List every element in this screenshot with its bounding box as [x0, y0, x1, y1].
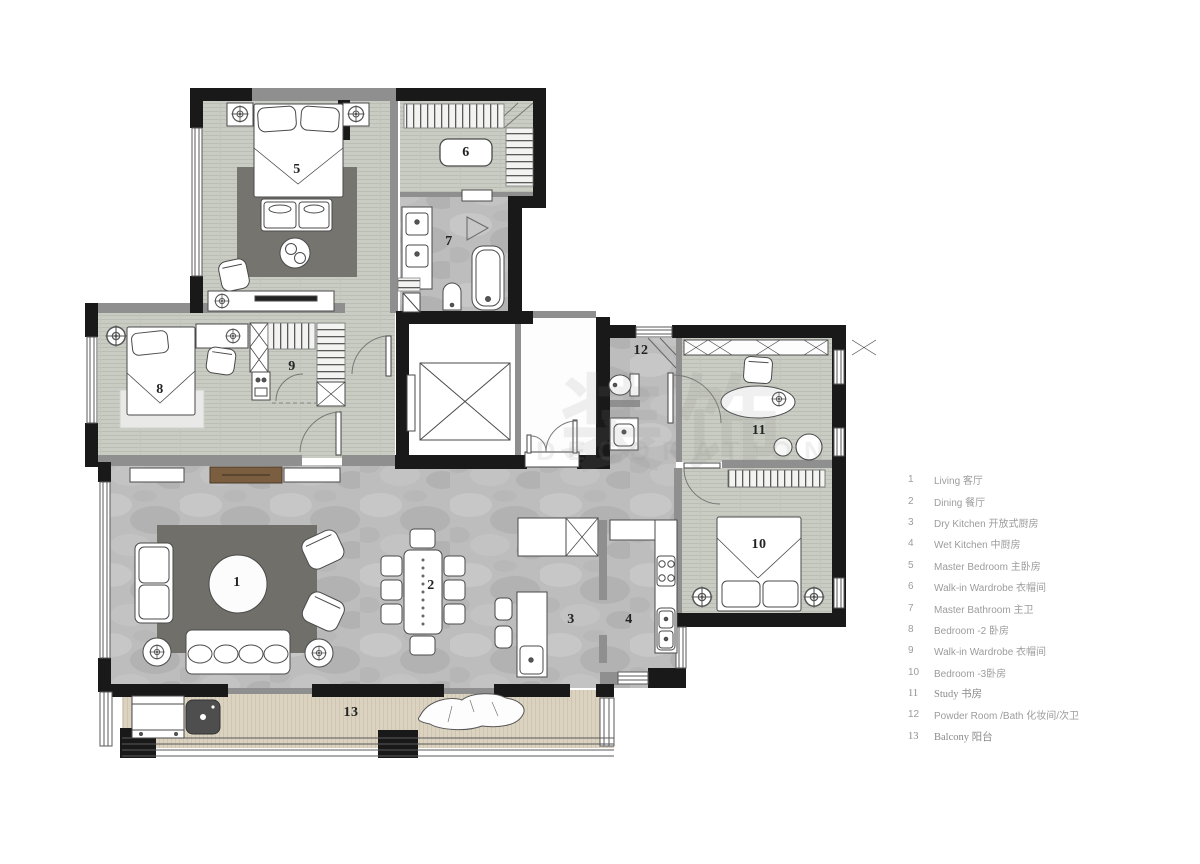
legend-item-dry-kitchen: 3 Dry Kitchen 开放式厨房: [908, 512, 1148, 533]
legend-label: Living 客厅: [934, 472, 983, 487]
legend-item-balcony: 13 Balcony 阳台: [908, 726, 1148, 747]
legend-number: 3: [908, 517, 934, 528]
legend-item-wet-kitchen: 4 Wet Kitchen 中厨房: [908, 533, 1148, 554]
floorplan-page: 装饰 DECORATION 1 2 3 4 5 6 7 8 9 10 11 12…: [0, 0, 1200, 864]
room-label-living: 1: [233, 575, 241, 591]
room-label-master-bedroom: 5: [293, 162, 301, 178]
legend-item-wardrobe-6: 6 Walk-in Wardrobe 衣帽间: [908, 576, 1148, 597]
room-label-dining: 2: [427, 578, 435, 594]
legend-number: 13: [908, 731, 934, 742]
legend-label: Master Bedroom 主卧房: [934, 558, 1041, 573]
legend-number: 7: [908, 603, 934, 614]
room-label-study: 11: [752, 423, 766, 439]
room-label-wardrobe-6: 6: [462, 145, 470, 161]
legend-number: 2: [908, 496, 934, 507]
legend-number: 11: [908, 688, 934, 699]
legend-label: Walk-in Wardrobe 衣帽间: [934, 579, 1046, 594]
legend-item-wardrobe-9: 9 Walk-in Wardrobe 衣帽间: [908, 640, 1148, 661]
legend-item-living: 1 Living 客厅: [908, 469, 1148, 490]
legend-number: 5: [908, 560, 934, 571]
legend-item-study: 11 Study 书房: [908, 683, 1148, 704]
room-label-wet-kitchen: 4: [625, 612, 633, 628]
room-label-wardrobe-9: 9: [288, 359, 296, 375]
legend-label: Balcony 阳台: [934, 729, 993, 744]
legend-label: Powder Room /Bath 化妆间/次卫: [934, 707, 1079, 722]
legend-number: 10: [908, 667, 934, 678]
legend-item-master-bedroom: 5 Master Bedroom 主卧房: [908, 555, 1148, 576]
legend-label: Wet Kitchen 中厨房: [934, 536, 1021, 551]
legend-number: 8: [908, 624, 934, 635]
legend-label: Dry Kitchen 开放式厨房: [934, 515, 1038, 530]
legend-number: 4: [908, 538, 934, 549]
legend-label: Master Bathroom 主卫: [934, 601, 1033, 616]
legend-item-powder-room: 12 Powder Room /Bath 化妆间/次卫: [908, 704, 1148, 725]
legend: 1 Living 客厅 2 Dining 餐厅 3 Dry Kitchen 开放…: [908, 469, 1148, 747]
legend-item-bedroom-3: 10 Bedroom -3卧房: [908, 662, 1148, 683]
legend-label: Bedroom -2 卧房: [934, 622, 1009, 637]
legend-label: Study 书房: [934, 686, 982, 701]
legend-label: Bedroom -3卧房: [934, 665, 1006, 680]
room-label-master-bathroom: 7: [445, 234, 453, 250]
legend-label: Walk-in Wardrobe 衣帽间: [934, 643, 1046, 658]
legend-number: 6: [908, 581, 934, 592]
legend-item-bedroom-2: 8 Bedroom -2 卧房: [908, 619, 1148, 640]
legend-number: 1: [908, 474, 934, 485]
legend-label: Dining 餐厅: [934, 494, 985, 509]
room-label-dry-kitchen: 3: [567, 612, 575, 628]
legend-number: 12: [908, 709, 934, 720]
room-label-bedroom-2: 8: [156, 382, 164, 398]
room-label-bedroom-3: 10: [752, 537, 767, 553]
legend-number: 9: [908, 645, 934, 656]
room-label-powder-room: 12: [634, 343, 649, 359]
legend-item-dining: 2 Dining 餐厅: [908, 490, 1148, 511]
room-label-balcony: 13: [344, 705, 359, 721]
legend-item-master-bathroom: 7 Master Bathroom 主卫: [908, 597, 1148, 618]
